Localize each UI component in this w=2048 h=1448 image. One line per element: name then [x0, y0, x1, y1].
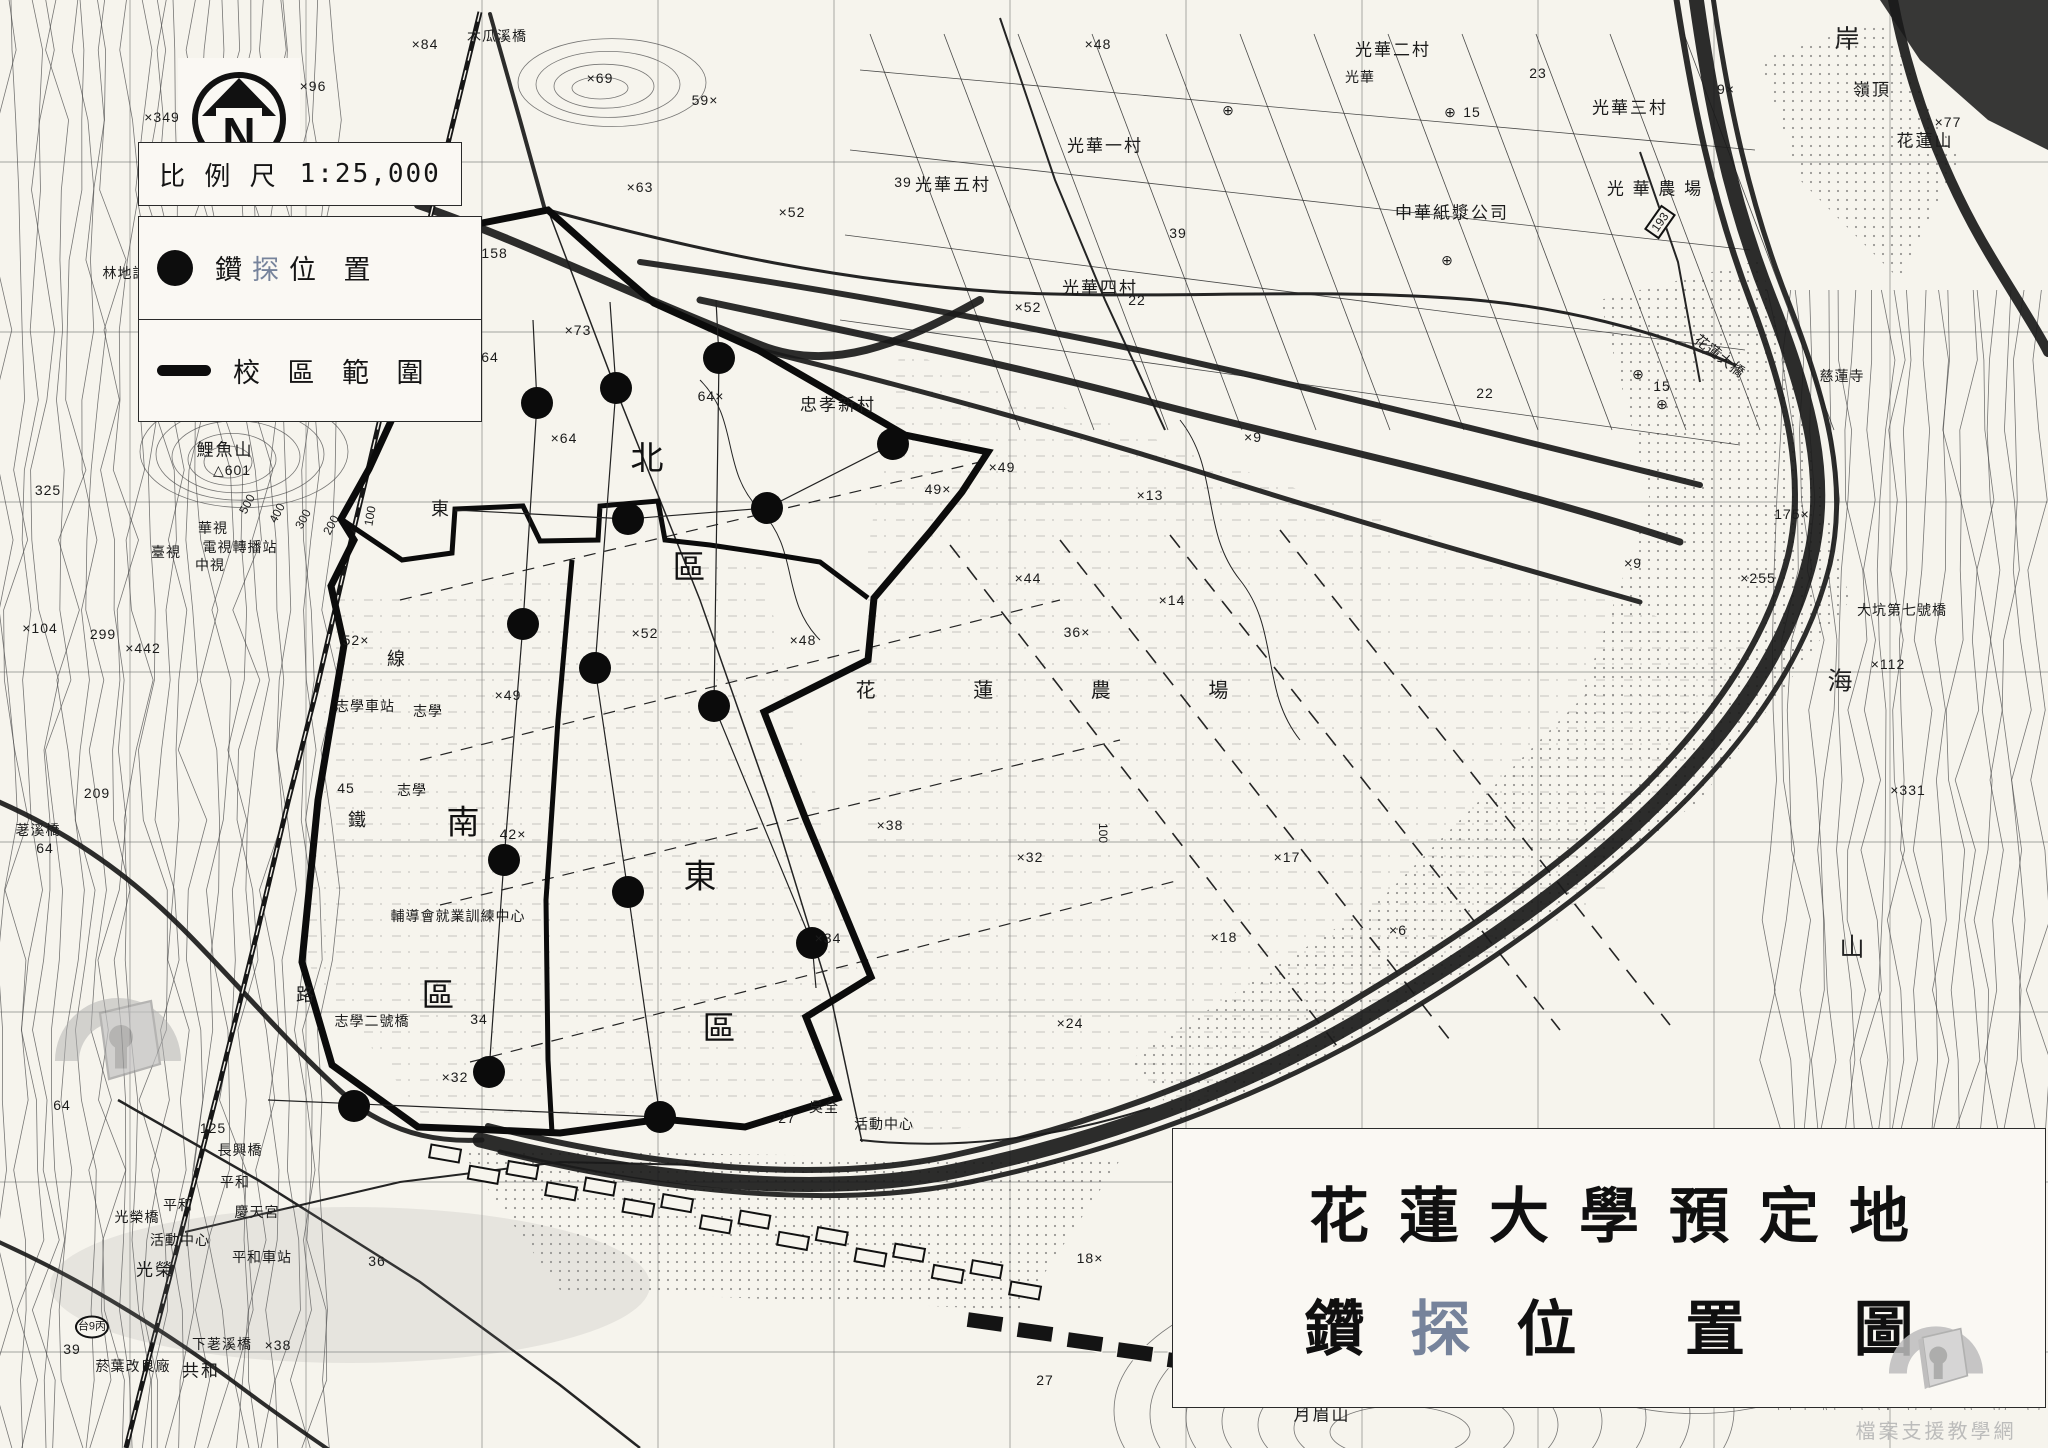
- map-title-line1: 花蓮大學預定地: [1279, 1168, 1939, 1255]
- map-label: 22: [1128, 293, 1146, 307]
- map-label: 菸葉改良廠: [96, 1359, 171, 1373]
- map-label: 荖溪橋: [16, 823, 61, 837]
- map-label: 52×: [343, 633, 370, 647]
- map-label: 300: [293, 507, 313, 530]
- map-label: ×44: [1015, 571, 1042, 585]
- map-label: ×34: [815, 931, 842, 945]
- map-label: 200: [321, 513, 341, 536]
- archives-logo-icon: [1861, 1304, 2011, 1416]
- legend-row-drill: 鑽探位 置: [139, 217, 481, 320]
- map-label: 共和: [182, 1363, 220, 1380]
- scale-label: 比 例 尺: [159, 156, 281, 193]
- map-label: 光榮橋: [115, 1210, 160, 1224]
- map-label: 慶天宮: [235, 1205, 280, 1219]
- map-label: 電視轉播站: [203, 540, 278, 554]
- map-label: 64×: [698, 389, 725, 403]
- map-label: 64: [481, 350, 499, 364]
- map-label: 東: [684, 860, 717, 893]
- map-label: 光華: [1345, 70, 1375, 84]
- map-label: 月眉山: [1294, 1407, 1351, 1424]
- map-label: 325: [35, 483, 61, 497]
- map-label: 台9丙: [75, 1316, 109, 1339]
- map-label: ×96: [300, 79, 327, 93]
- map-label: ×63: [627, 180, 654, 194]
- scale-bar: 比 例 尺 1:25,000: [138, 142, 462, 206]
- map-label: ×32: [442, 1070, 469, 1084]
- map-label: 吳全: [809, 1100, 839, 1114]
- map-label: 北: [631, 442, 664, 475]
- map-label: 光華一村: [1067, 138, 1143, 155]
- map-label: 下荖溪橋: [192, 1337, 252, 1351]
- map-label: 光榮: [136, 1262, 174, 1279]
- map-label: 9×: [1717, 82, 1735, 96]
- map-label: ×331: [1890, 783, 1926, 797]
- archives-logo-watermark: [18, 968, 218, 1118]
- map-label: 400: [267, 501, 287, 524]
- map-label: ×77: [1935, 115, 1962, 129]
- map-label: 鯉魚山: [197, 442, 254, 459]
- map-label: 光華四村: [1062, 280, 1138, 297]
- map-label: ×18: [1211, 930, 1238, 944]
- map-label: 志學二號橋: [335, 1014, 410, 1028]
- map-label: ×52: [779, 205, 806, 219]
- map-label: ⊕: [1222, 103, 1234, 117]
- map-label: 區: [703, 1012, 736, 1045]
- map-label: 15: [1653, 379, 1671, 393]
- legend: 鑽探位 置 校 區 範 圍: [138, 216, 482, 422]
- map-label: ×52: [632, 626, 659, 640]
- map-label: ×112: [1871, 657, 1906, 671]
- map-label: 22: [1476, 386, 1494, 400]
- map-label: 路: [296, 986, 314, 1004]
- watermark-text: 檔案支援教學網: [1826, 1415, 2046, 1444]
- map-label: 慈蓮寺: [1820, 369, 1865, 383]
- map-label: ×442: [125, 641, 161, 655]
- map-label: 長興橋: [218, 1143, 263, 1157]
- map-label: 299: [90, 627, 116, 641]
- map-label: 光華二村: [1355, 42, 1431, 59]
- map-label: ×104: [22, 621, 58, 635]
- map-label: 嶺頂: [1853, 82, 1891, 99]
- map-label: 輔導會就業訓練中心: [391, 909, 526, 923]
- map-label: 海: [1827, 670, 1852, 695]
- map-label: 15: [1463, 105, 1481, 119]
- map-label: 39: [894, 175, 912, 189]
- scale-value: 1:25,000: [300, 159, 441, 189]
- map-label: 100: [362, 505, 377, 527]
- map-label: ⊕: [1632, 367, 1644, 381]
- map-label: ×73: [565, 323, 592, 337]
- map-label: ×9: [1244, 430, 1262, 444]
- map-label: △601: [213, 463, 251, 477]
- map-label: 平和: [220, 1175, 250, 1189]
- map-label: ×6: [1389, 923, 1407, 937]
- map-label: 125: [200, 1121, 226, 1135]
- map-label: 活動中心: [150, 1233, 210, 1247]
- map-label: ⊕: [1656, 397, 1668, 411]
- map-label: 36: [368, 1254, 386, 1268]
- map-label: ×38: [265, 1338, 292, 1352]
- map-label: ×49: [495, 688, 522, 702]
- map-label: 華視: [198, 521, 228, 535]
- map-label: 100: [1097, 823, 1109, 843]
- map-label: 27: [1036, 1373, 1054, 1387]
- map-label: 27: [778, 1111, 796, 1125]
- map-label: 39: [63, 1342, 81, 1356]
- map-label: ×13: [1137, 488, 1164, 502]
- map-label: 42×: [500, 827, 527, 841]
- legend-boundary-label: 校 區 範 圍: [233, 351, 434, 390]
- map-label: 臺視: [151, 545, 181, 559]
- map-label: 線: [387, 650, 405, 668]
- map-label: 光華五村: [915, 177, 991, 194]
- map-label: ×64: [551, 431, 578, 445]
- map-label: 南: [447, 806, 480, 839]
- map-label: 34: [470, 1012, 488, 1026]
- map-label: 山: [1839, 936, 1864, 961]
- map-label: 忠孝新村: [800, 397, 876, 414]
- map-label: 光 華 農 場: [1607, 181, 1703, 198]
- map-label: 193: [1644, 205, 1676, 240]
- map-label: ×349: [144, 110, 180, 124]
- map-label: ×17: [1274, 850, 1301, 864]
- map-label: 39: [1169, 226, 1187, 240]
- map-label: ×52: [1015, 300, 1042, 314]
- map-label: 志學: [413, 704, 443, 718]
- map-label: ×48: [790, 633, 817, 647]
- map-label: ×255: [1740, 571, 1776, 585]
- campus-boundary-icon: [157, 365, 211, 376]
- map-label: ×38: [877, 818, 904, 832]
- legend-drill-label: 鑽探位 置: [215, 248, 381, 287]
- map-label: ×69: [587, 71, 614, 85]
- legend-row-boundary: 校 區 範 圍: [139, 320, 481, 422]
- map-label: 500: [237, 492, 257, 515]
- map-label: 區: [422, 979, 455, 1012]
- map-label: ×49: [989, 460, 1016, 474]
- map-label: ×48: [1085, 37, 1112, 51]
- map-label: 64: [36, 841, 54, 855]
- map-label: 花蓮山: [1897, 133, 1954, 150]
- map-label: 中華紙漿公司: [1395, 205, 1509, 222]
- map-label: 志學車站: [335, 699, 395, 713]
- map-label: 平和車站: [232, 1250, 292, 1264]
- map-label: 175×: [1774, 507, 1810, 521]
- map-label: 平和: [163, 1198, 193, 1212]
- map-label: ×24: [1057, 1016, 1084, 1030]
- map-label: 鐵: [348, 811, 366, 829]
- map-label: 45: [337, 781, 355, 795]
- map-label: 36×: [1064, 625, 1091, 639]
- scanned-topo-map: ×96×349×84木瓜溪橋×6959××63×5239×158×48光華一村光…: [0, 0, 2048, 1448]
- map-label: 木瓜溪橋: [467, 29, 527, 43]
- map-label: 花 蓮 農 場: [856, 681, 1275, 701]
- map-label: ×9: [1624, 556, 1642, 570]
- map-label: ×32: [1017, 850, 1044, 864]
- archives-watermark: 檔案支援教學網: [1826, 1304, 2046, 1444]
- drill-point-icon: [157, 250, 193, 286]
- map-label: 23: [1529, 66, 1547, 80]
- map-label: 區: [673, 551, 706, 584]
- map-label: 59×: [692, 93, 719, 107]
- map-label: ⊕: [1441, 253, 1453, 267]
- map-label: ⊕: [1444, 105, 1456, 119]
- map-label: 東: [431, 500, 449, 518]
- map-label: ×84: [412, 37, 439, 51]
- map-label: 大坑第七號橋: [1857, 603, 1947, 617]
- map-label: 志學: [397, 783, 427, 797]
- map-label: 光華三村: [1592, 100, 1668, 117]
- map-label: 花蓮大橋: [1692, 332, 1748, 380]
- map-label: 中視: [195, 558, 225, 572]
- map-label: 活動中心: [854, 1117, 914, 1131]
- map-label: ×14: [1159, 593, 1186, 607]
- map-label: 209: [84, 786, 110, 800]
- map-label: 岸: [1834, 28, 1859, 53]
- map-label: 18×: [1077, 1251, 1104, 1265]
- map-label: 49×: [925, 482, 952, 496]
